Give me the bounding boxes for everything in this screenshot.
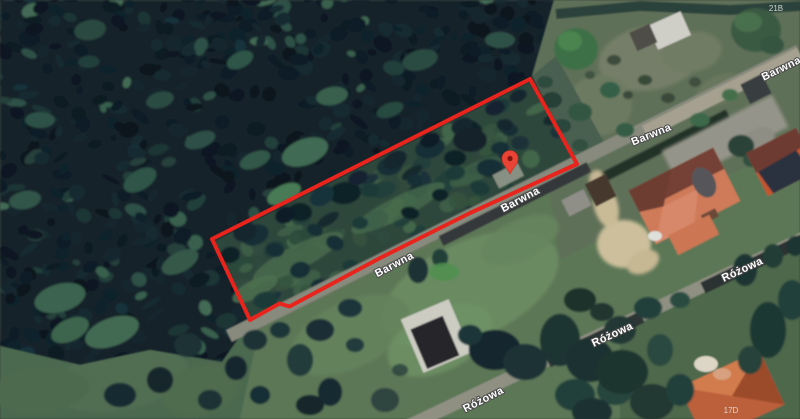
svg-text:21B: 21B [769,4,783,13]
svg-text:17D: 17D [724,406,739,415]
